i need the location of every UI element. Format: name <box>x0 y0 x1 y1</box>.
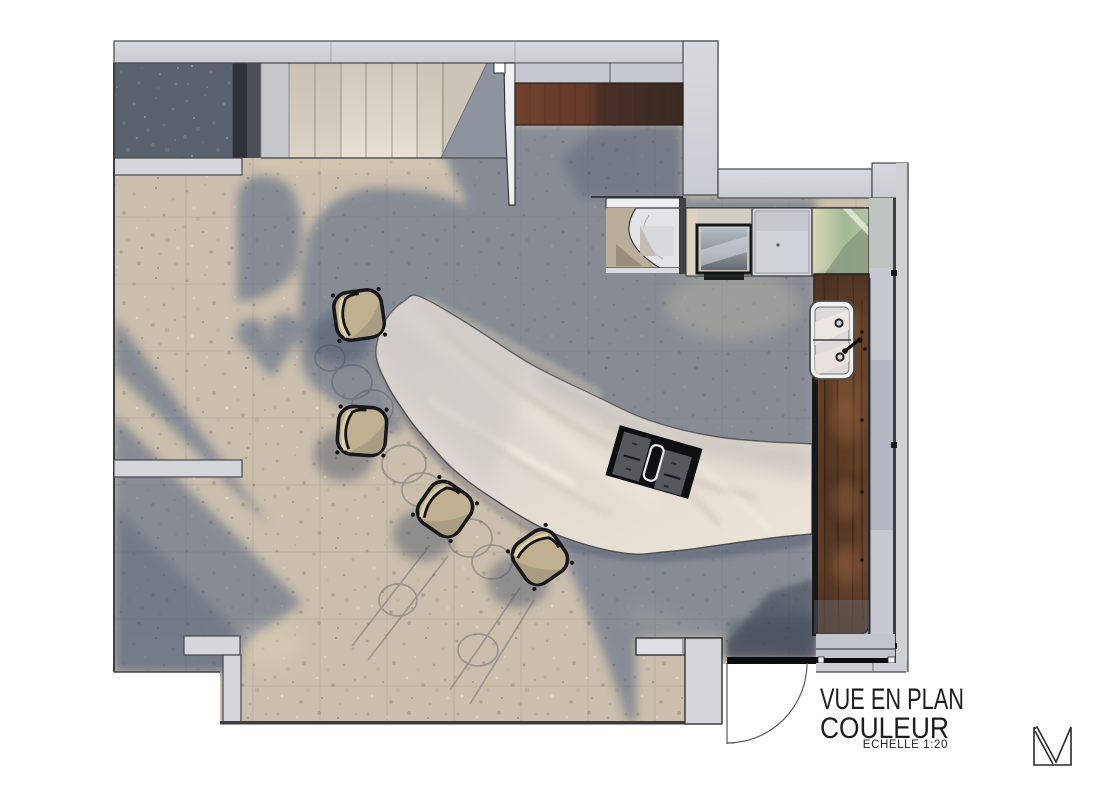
svg-text:ECHELLE 1:20: ECHELLE 1:20 <box>863 739 948 751</box>
